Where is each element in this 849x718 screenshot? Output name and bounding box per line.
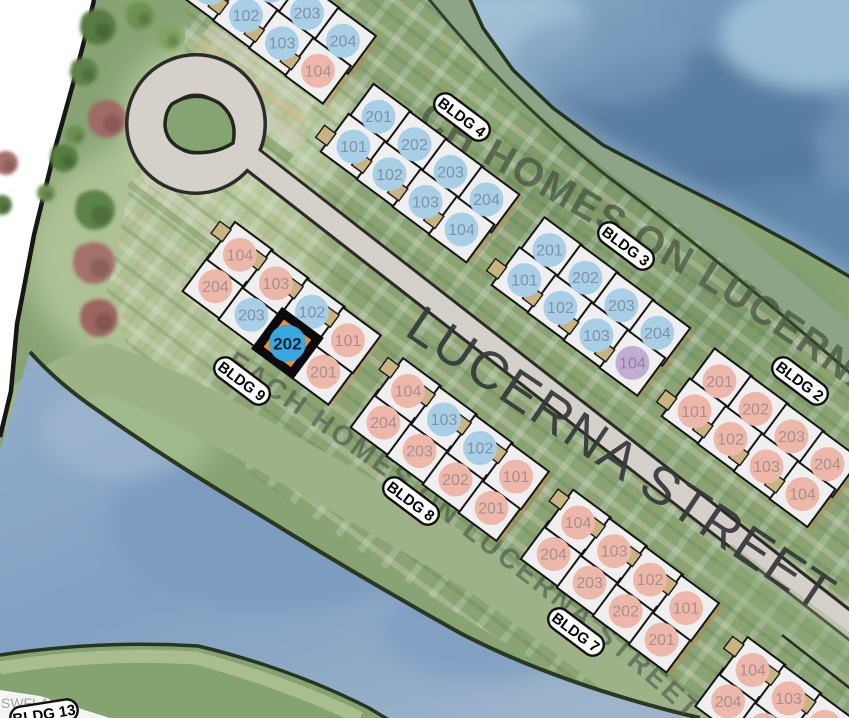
svg-text:201: 201 <box>365 109 392 126</box>
svg-text:202: 202 <box>742 401 769 418</box>
svg-text:201: 201 <box>310 364 337 381</box>
svg-text:203: 203 <box>294 6 321 23</box>
svg-text:204: 204 <box>330 33 357 50</box>
svg-text:101: 101 <box>681 404 708 421</box>
svg-text:104: 104 <box>305 63 332 80</box>
svg-text:103: 103 <box>412 194 439 211</box>
svg-text:203: 203 <box>437 164 464 181</box>
svg-text:204: 204 <box>540 547 567 564</box>
svg-text:101: 101 <box>511 273 538 290</box>
svg-text:102: 102 <box>299 304 326 321</box>
svg-text:202: 202 <box>442 472 469 489</box>
svg-text:103: 103 <box>601 544 628 561</box>
svg-text:201: 201 <box>536 243 563 260</box>
svg-text:103: 103 <box>431 412 458 429</box>
svg-text:204: 204 <box>370 415 397 432</box>
svg-text:104: 104 <box>227 247 254 264</box>
svg-text:101: 101 <box>673 601 700 618</box>
svg-text:102: 102 <box>547 300 574 317</box>
svg-text:101: 101 <box>335 333 362 350</box>
svg-text:102: 102 <box>467 441 494 458</box>
svg-text:204: 204 <box>644 325 671 342</box>
svg-text:104: 104 <box>739 662 766 679</box>
svg-text:203: 203 <box>778 429 805 446</box>
svg-text:204: 204 <box>715 694 742 711</box>
svg-text:102: 102 <box>717 431 744 448</box>
svg-text:101: 101 <box>503 469 530 486</box>
svg-text:103: 103 <box>753 459 780 476</box>
svg-text:103: 103 <box>775 691 802 708</box>
svg-text:102: 102 <box>376 167 403 184</box>
svg-text:104: 104 <box>395 384 422 401</box>
svg-text:202: 202 <box>401 137 428 154</box>
svg-text:203: 203 <box>406 444 433 461</box>
svg-text:202: 202 <box>612 604 639 621</box>
svg-text:202: 202 <box>273 334 301 353</box>
svg-text:201: 201 <box>706 374 733 391</box>
svg-text:201: 201 <box>478 501 505 518</box>
svg-text:102: 102 <box>233 8 260 25</box>
svg-text:103: 103 <box>583 328 610 345</box>
svg-text:201: 201 <box>648 632 675 649</box>
svg-text:203: 203 <box>238 307 265 324</box>
svg-text:103: 103 <box>263 276 290 293</box>
svg-text:204: 204 <box>814 457 841 474</box>
svg-text:103: 103 <box>269 36 296 53</box>
svg-text:204: 204 <box>473 192 500 209</box>
svg-text:202: 202 <box>572 270 599 287</box>
svg-text:104: 104 <box>789 487 816 504</box>
svg-text:101: 101 <box>340 139 367 156</box>
svg-text:203: 203 <box>608 298 635 315</box>
svg-text:104: 104 <box>565 515 592 532</box>
svg-text:104: 104 <box>619 355 646 372</box>
svg-text:203: 203 <box>576 575 603 592</box>
svg-text:104: 104 <box>448 222 475 239</box>
svg-text:204: 204 <box>202 279 229 296</box>
svg-text:102: 102 <box>637 572 664 589</box>
